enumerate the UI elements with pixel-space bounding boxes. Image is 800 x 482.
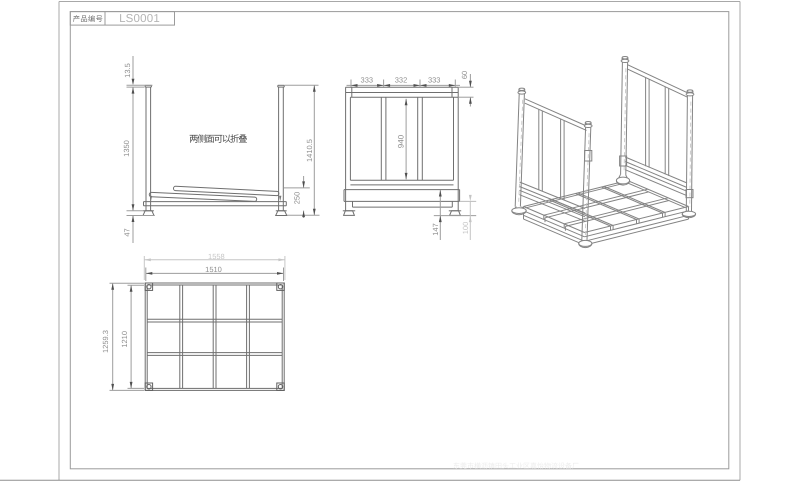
svg-text:1410.5: 1410.5 (305, 139, 314, 162)
svg-text:1510: 1510 (205, 265, 222, 274)
svg-text:1259.3: 1259.3 (101, 330, 110, 353)
svg-text:LS0001: LS0001 (119, 13, 160, 25)
svg-text:332: 332 (395, 75, 408, 84)
svg-text:250: 250 (292, 192, 301, 205)
svg-text:940: 940 (396, 134, 405, 148)
svg-text:333: 333 (428, 75, 441, 84)
svg-text:1350: 1350 (122, 140, 131, 157)
svg-text:13.5: 13.5 (123, 63, 132, 78)
svg-text:1558: 1558 (208, 252, 225, 261)
svg-text:47: 47 (123, 228, 132, 236)
svg-text:1210: 1210 (120, 331, 129, 348)
svg-text:60: 60 (460, 71, 469, 79)
svg-text:333: 333 (361, 75, 374, 84)
svg-text:147: 147 (431, 223, 440, 236)
svg-text:100: 100 (461, 222, 470, 235)
